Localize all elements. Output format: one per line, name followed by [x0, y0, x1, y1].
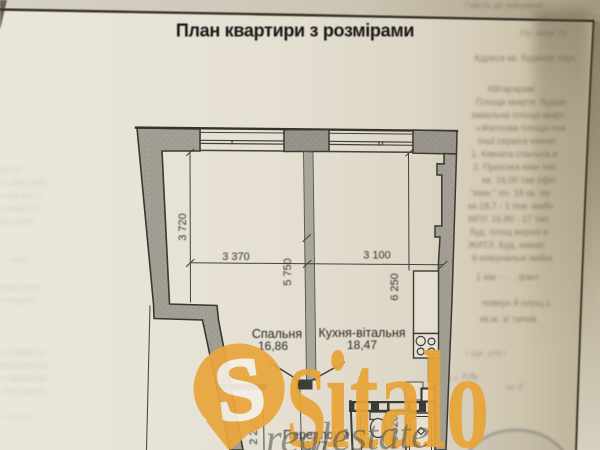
- svg-text:и інший об: и інший об: [0, 204, 40, 213]
- svg-text:ни з": ни з": [505, 382, 525, 392]
- svg-text:1 кім - . . . факт: 1 кім - . . . факт: [476, 272, 539, 282]
- svg-text:ЖИТЛ. Буд. кімнат: ЖИТЛ. Буд. кімнат: [468, 240, 545, 250]
- svg-text:План квартири з розмірами: План квартири з розмірами: [176, 21, 414, 41]
- svg-text:5 750: 5 750: [282, 258, 294, 286]
- svg-text:вишитий нив: вишитий нив: [0, 361, 48, 370]
- svg-text:і втіш нишпо: і втіш нишпо: [0, 387, 47, 396]
- svg-text:ні пишній: ні пишній: [0, 296, 34, 305]
- svg-text:від шини: від шини: [0, 217, 33, 226]
- svg-text:realestate: realestate: [265, 411, 431, 450]
- svg-text:3 720: 3 720: [177, 213, 189, 241]
- svg-text:пн вишив ш: пн вишив ш: [0, 348, 43, 357]
- svg-text:3 370: 3 370: [222, 251, 250, 263]
- svg-text:ш іви дит п: ш іви дит п: [0, 191, 41, 200]
- svg-text:і пінні: і пінні: [8, 255, 29, 264]
- svg-text:пиши типів: пиши типів: [0, 283, 40, 292]
- svg-text:— нт и ті: — нт и ті: [0, 413, 33, 422]
- svg-text:ііш нп: ііш нп: [0, 165, 21, 174]
- svg-text:ш нивній тіш: ш нивній тіш: [0, 374, 47, 383]
- svg-text:КВтаpapaві: КВтаpapaві: [488, 84, 535, 94]
- svg-text:6 250: 6 250: [389, 273, 401, 301]
- svg-text:Гнйсть до зміцненні: Гнйсть до зміцненні: [465, 0, 543, 10]
- svg-text:пт виш іmiliti: пт виш іmiliti: [0, 178, 46, 187]
- svg-text:3 100: 3 100: [363, 250, 391, 262]
